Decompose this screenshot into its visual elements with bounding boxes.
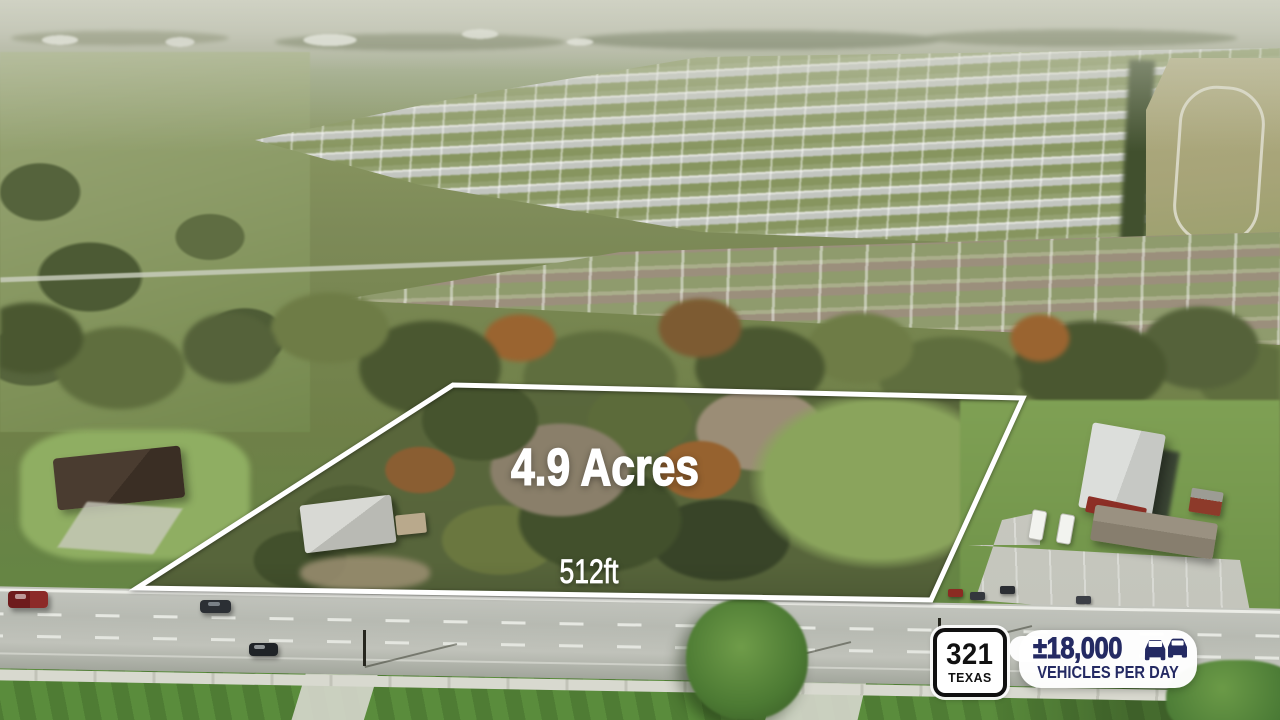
property-shed	[395, 512, 427, 535]
aerial-photo: 4.9 Acres 512ft 321 TEXAS ±18,000 VEHICL…	[0, 0, 1280, 720]
traffic-badge: ±18,000 VEHICLES PER DAY	[1019, 630, 1197, 688]
foreground-tree	[686, 598, 808, 720]
utility-pole	[363, 630, 366, 666]
traffic-volume: ±18,000	[1033, 632, 1122, 666]
route-number: 321	[946, 640, 993, 670]
car-on-road	[200, 600, 231, 613]
parked-car	[970, 592, 985, 600]
cars-icon	[1143, 635, 1189, 663]
parked-car	[1076, 596, 1091, 604]
car-on-road	[8, 591, 48, 608]
parked-car	[1000, 586, 1015, 594]
texas-321-sign: 321 TEXAS	[933, 628, 1007, 697]
car-on-road	[249, 643, 278, 656]
parked-car	[948, 589, 963, 597]
new-development-road-loop	[1171, 83, 1268, 247]
acreage-label: 4.9 Acres	[470, 440, 741, 496]
property-dirt-patch	[300, 556, 430, 590]
traffic-caption: VEHICLES PER DAY	[1033, 662, 1183, 683]
red-shed	[1188, 488, 1223, 517]
frontage-label: 512ft	[511, 554, 667, 590]
state-label: TEXAS	[948, 670, 992, 685]
